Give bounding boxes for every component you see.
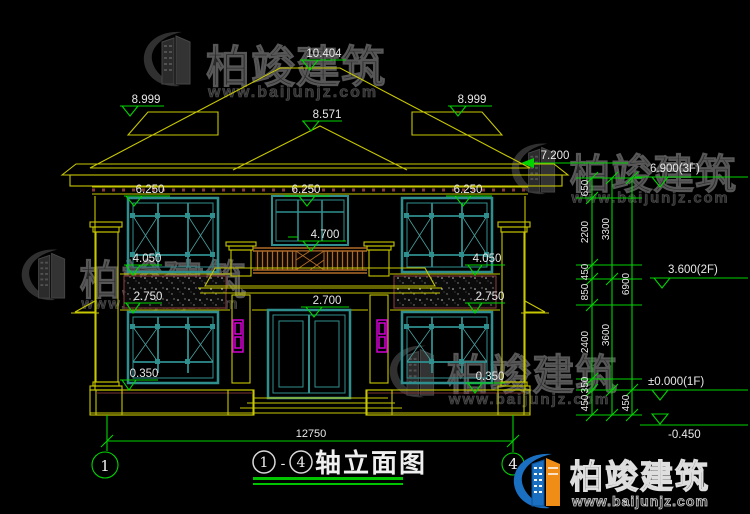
brand-logo-text: 柏竣建筑 (570, 458, 710, 495)
dim-450a: 450 (580, 263, 591, 280)
svg-text:10.404: 10.404 (306, 48, 342, 60)
brand-logo-url: www.baijunjz.com (571, 493, 709, 509)
svg-text:6.250: 6.250 (136, 184, 165, 196)
svg-text:4.050: 4.050 (473, 253, 502, 265)
dim-450b: 450 (580, 394, 591, 411)
svg-text:8.571: 8.571 (313, 109, 342, 121)
brand-logo: 柏竣建筑 www.baijunjz.com (514, 454, 710, 509)
svg-text:7.200: 7.200 (541, 150, 570, 162)
svg-text:1: 1 (100, 457, 110, 475)
svg-text:8.999: 8.999 (132, 94, 161, 106)
dim-2200: 2200 (580, 220, 591, 243)
title-underline-2 (253, 483, 403, 485)
dim-650: 650 (580, 179, 591, 196)
svg-text:4: 4 (297, 455, 306, 471)
dim-350: 350 (580, 376, 591, 393)
svg-text:2.700: 2.700 (313, 295, 342, 307)
svg-text:6.250: 6.250 (454, 184, 483, 196)
dim-2400: 2400 (580, 330, 591, 353)
dim-6900: 6900 (621, 272, 632, 295)
elevation-drawing: 柏竣建筑 www.baijunjz.com 柏竣建筑 www.baijunjz.… (0, 0, 750, 514)
dim-3300: 3300 (601, 217, 612, 240)
dim-450c: 450 (621, 394, 632, 411)
svg-text:8.999: 8.999 (458, 94, 487, 106)
title-separator: - (281, 456, 286, 472)
svg-text:0.350: 0.350 (130, 368, 159, 380)
svg-text:4.700: 4.700 (311, 229, 340, 241)
dim-850: 850 (580, 283, 591, 300)
svg-text:6.900(3F): 6.900(3F) (650, 163, 700, 175)
svg-text:-0.450: -0.450 (668, 429, 701, 441)
title-underline-1 (253, 477, 403, 480)
svg-text:2.750: 2.750 (134, 291, 163, 303)
overall-width-dim: 12750 (296, 428, 327, 440)
svg-text:±0.000(1F): ±0.000(1F) (648, 376, 704, 388)
svg-text:0.350: 0.350 (476, 371, 505, 383)
balcony-ornament (296, 251, 324, 270)
svg-text:3.600(2F): 3.600(2F) (668, 264, 718, 276)
svg-text:2.750: 2.750 (476, 291, 505, 303)
cad-elevation-screenshot: 柏竣建筑 www.baijunjz.com 柏竣建筑 www.baijunjz.… (0, 0, 750, 514)
svg-text:6.250: 6.250 (292, 184, 321, 196)
svg-text:1: 1 (260, 455, 269, 471)
dim-3600: 3600 (601, 323, 612, 346)
title-text: 轴立面图 (315, 448, 427, 478)
svg-text:4.050: 4.050 (133, 253, 162, 265)
